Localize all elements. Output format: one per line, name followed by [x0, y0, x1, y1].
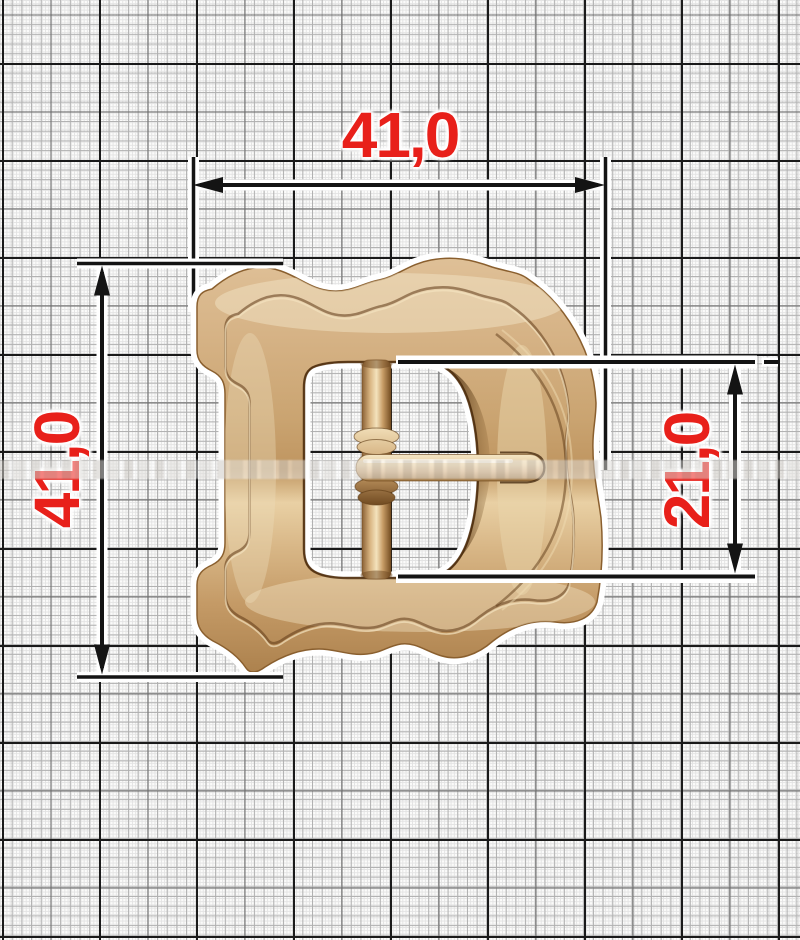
arrowhead-down	[94, 645, 110, 675]
dim-label-width: 41,0	[342, 103, 459, 167]
arrowhead-up	[94, 266, 110, 296]
watermark-band	[0, 460, 800, 479]
graph-paper: 41,0 41,0 21,0	[0, 0, 800, 940]
